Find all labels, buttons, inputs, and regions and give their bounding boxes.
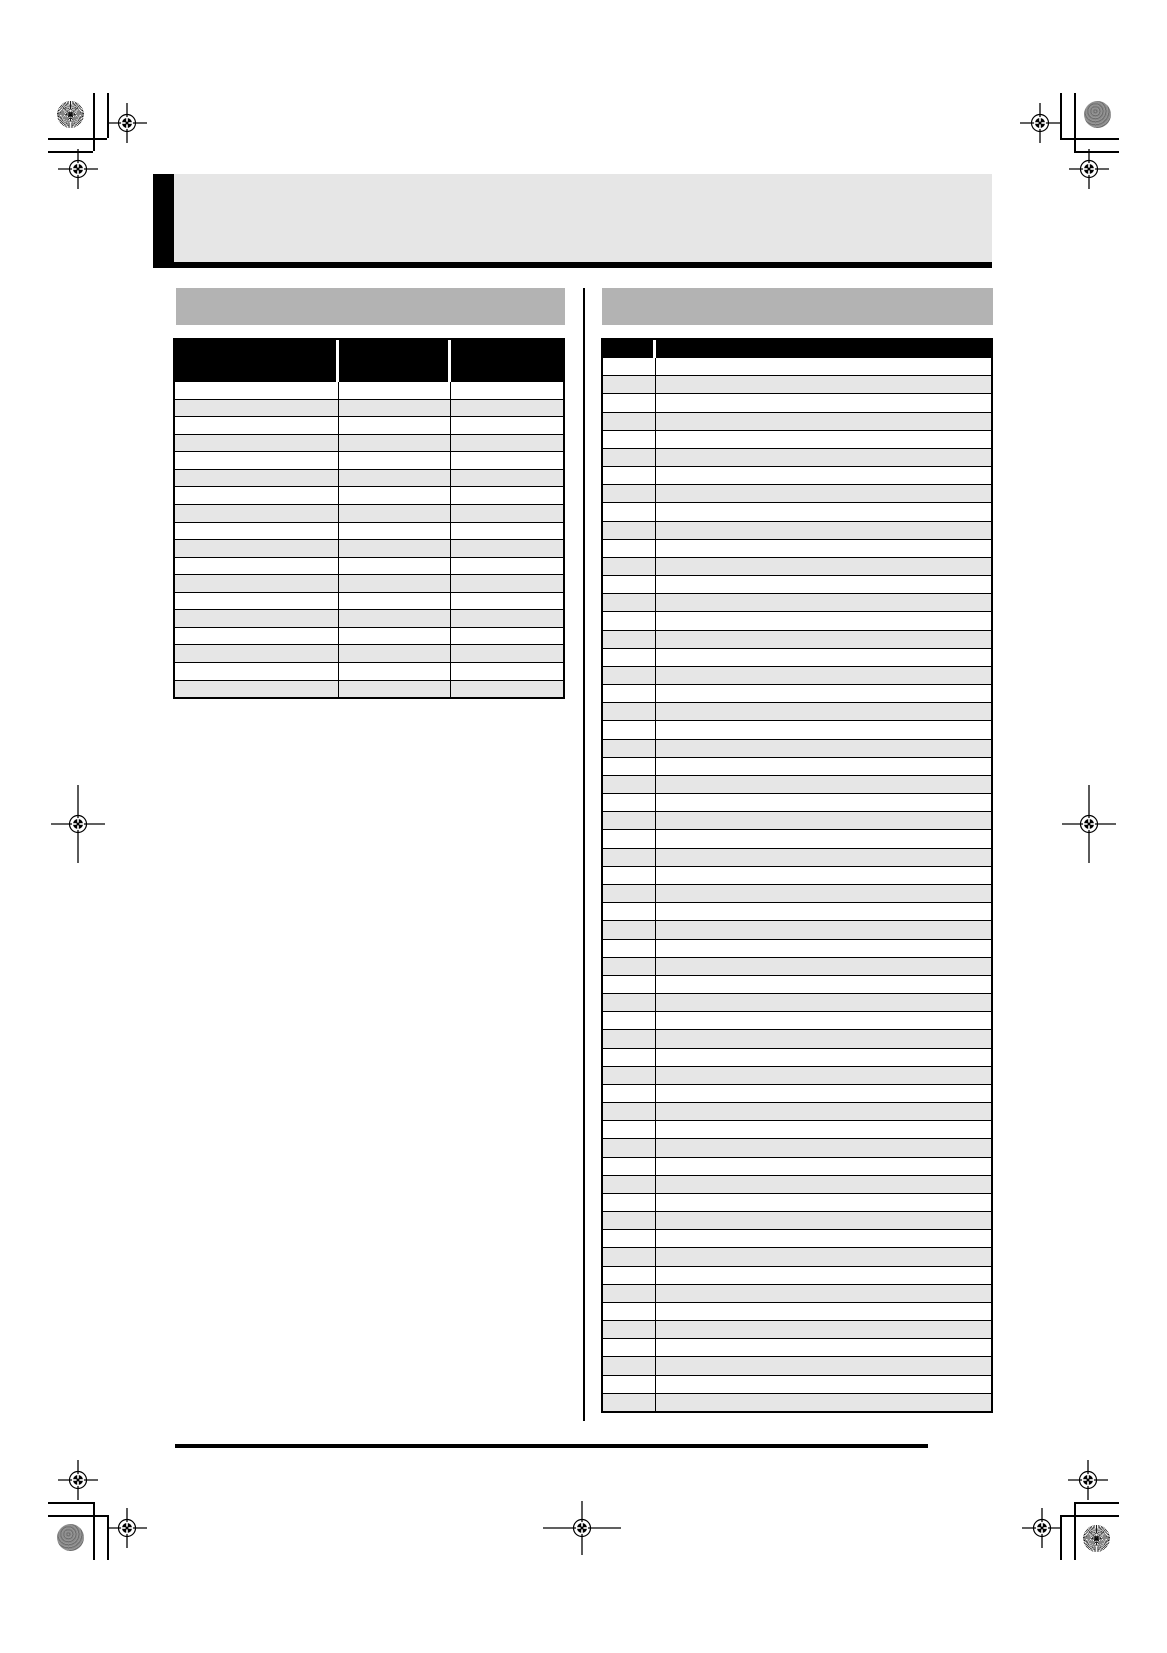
table-row — [603, 594, 991, 612]
registration-mark-icon — [1062, 785, 1116, 868]
left-table-header-row — [175, 340, 563, 382]
table-row — [175, 452, 563, 470]
table-row — [603, 1049, 991, 1067]
table-header-cell — [603, 340, 656, 358]
table-cell — [603, 1303, 656, 1320]
table-cell — [603, 1176, 656, 1193]
table-row — [603, 449, 991, 467]
table-row — [603, 1194, 991, 1212]
table-row — [603, 1394, 991, 1411]
table-cell — [451, 575, 563, 592]
table-row — [603, 1303, 991, 1321]
table-cell — [603, 940, 656, 957]
right-table — [601, 338, 993, 1413]
table-row — [603, 721, 991, 739]
table-cell — [656, 794, 991, 811]
table-cell — [656, 558, 991, 575]
table-cell — [656, 449, 991, 466]
table-cell — [603, 740, 656, 757]
table-header-cell — [451, 340, 563, 382]
table-row — [175, 663, 563, 681]
table-cell — [656, 1230, 991, 1247]
table-row — [603, 994, 991, 1012]
table-cell — [603, 413, 656, 430]
starburst-target-icon — [57, 101, 84, 128]
table-cell — [603, 1030, 656, 1047]
table-row — [603, 685, 991, 703]
table-cell — [656, 522, 991, 539]
table-cell — [603, 1285, 656, 1302]
table-cell — [603, 431, 656, 448]
table-cell — [339, 435, 451, 452]
table-cell — [603, 794, 656, 811]
table-row — [603, 1212, 991, 1230]
table-cell — [603, 721, 656, 738]
table-cell — [603, 394, 656, 411]
table-cell — [603, 449, 656, 466]
table-row — [603, 1139, 991, 1157]
table-row — [603, 940, 991, 958]
table-row — [603, 1357, 991, 1375]
table-cell — [339, 663, 451, 680]
table-row — [603, 576, 991, 594]
table-row — [603, 1176, 991, 1194]
crop-mark-line — [1060, 93, 1062, 138]
table-row — [603, 776, 991, 794]
right-section-title-bar — [602, 288, 993, 325]
table-cell — [603, 1339, 656, 1356]
table-cell — [339, 540, 451, 557]
table-row — [603, 885, 991, 903]
table-cell — [339, 610, 451, 627]
table-cell — [656, 1103, 991, 1120]
table-cell — [175, 575, 339, 592]
table-row — [175, 400, 563, 418]
table-cell — [603, 1357, 656, 1374]
table-cell — [603, 631, 656, 648]
table-row — [603, 703, 991, 721]
table-cell — [603, 467, 656, 484]
table-cell — [656, 1376, 991, 1393]
table-cell — [451, 663, 563, 680]
table-cell — [603, 1139, 656, 1156]
table-row — [603, 958, 991, 976]
right-table-body — [603, 358, 991, 1411]
table-cell — [656, 1030, 991, 1047]
table-cell — [451, 470, 563, 487]
table-cell — [656, 485, 991, 502]
table-cell — [451, 593, 563, 610]
table-row — [603, 1030, 991, 1048]
table-cell — [656, 940, 991, 957]
table-cell — [339, 575, 451, 592]
table-row — [603, 849, 991, 867]
halftone-target-icon — [57, 1524, 84, 1551]
table-cell — [603, 522, 656, 539]
table-row — [603, 1103, 991, 1121]
table-cell — [603, 1321, 656, 1338]
table-cell — [451, 523, 563, 540]
table-cell — [656, 576, 991, 593]
crop-mark-line — [48, 151, 93, 153]
table-cell — [339, 523, 451, 540]
table-cell — [656, 1212, 991, 1229]
table-cell — [656, 867, 991, 884]
table-cell — [656, 903, 991, 920]
table-cell — [175, 435, 339, 452]
table-cell — [603, 667, 656, 684]
table-cell — [656, 921, 991, 938]
table-cell — [603, 649, 656, 666]
table-cell — [656, 1012, 991, 1029]
table-row — [603, 1248, 991, 1266]
table-row — [603, 740, 991, 758]
table-cell — [656, 1158, 991, 1175]
table-cell — [603, 558, 656, 575]
table-row — [175, 523, 563, 541]
table-header-cell — [339, 340, 451, 382]
table-cell — [175, 470, 339, 487]
halftone-target-icon — [1084, 101, 1111, 128]
table-cell — [339, 470, 451, 487]
table-row — [603, 413, 991, 431]
table-row — [603, 522, 991, 540]
table-row — [175, 470, 563, 488]
table-cell — [656, 830, 991, 847]
left-table — [173, 338, 565, 699]
table-row — [175, 382, 563, 400]
table-cell — [339, 487, 451, 504]
table-cell — [339, 645, 451, 662]
left-section-title-bar — [176, 288, 565, 325]
table-cell — [656, 994, 991, 1011]
table-cell — [339, 593, 451, 610]
document-page — [0, 0, 1167, 1653]
table-row — [603, 812, 991, 830]
table-row — [603, 631, 991, 649]
crop-mark-line — [1074, 151, 1119, 153]
header-bottom-rule — [153, 262, 992, 268]
table-cell — [656, 1285, 991, 1302]
table-row — [175, 505, 563, 523]
table-cell — [603, 1212, 656, 1229]
table-cell — [603, 776, 656, 793]
table-cell — [656, 758, 991, 775]
table-cell — [603, 485, 656, 502]
table-row — [175, 558, 563, 576]
table-row — [603, 1085, 991, 1103]
table-cell — [603, 1121, 656, 1138]
table-row — [603, 558, 991, 576]
registration-mark-icon — [51, 785, 105, 868]
table-row — [603, 394, 991, 412]
registration-mark-icon — [1068, 1460, 1108, 1505]
table-cell — [451, 435, 563, 452]
table-cell — [656, 358, 991, 375]
table-cell — [603, 1103, 656, 1120]
table-row — [603, 903, 991, 921]
table-cell — [656, 413, 991, 430]
table-cell — [603, 1267, 656, 1284]
table-cell — [451, 487, 563, 504]
table-cell — [656, 1049, 991, 1066]
crop-mark-line — [1060, 1515, 1119, 1517]
registration-mark-icon — [107, 103, 147, 148]
table-cell — [656, 540, 991, 557]
table-cell — [603, 1230, 656, 1247]
table-header-cell — [175, 340, 339, 382]
crop-mark-line — [48, 138, 107, 140]
table-cell — [603, 1158, 656, 1175]
table-cell — [603, 1085, 656, 1102]
registration-mark-icon — [1020, 103, 1060, 148]
crop-mark-line — [1074, 1502, 1076, 1560]
table-cell — [339, 558, 451, 575]
table-row — [175, 593, 563, 611]
table-cell — [603, 903, 656, 920]
registration-mark-icon — [1069, 149, 1109, 194]
registration-mark-icon — [58, 149, 98, 194]
table-cell — [656, 649, 991, 666]
table-cell — [656, 1176, 991, 1193]
table-cell — [603, 703, 656, 720]
table-cell — [175, 417, 339, 434]
table-cell — [656, 1067, 991, 1084]
table-row — [175, 540, 563, 558]
table-cell — [603, 358, 656, 375]
table-cell — [603, 958, 656, 975]
table-row — [603, 612, 991, 630]
table-cell — [656, 721, 991, 738]
table-cell — [603, 994, 656, 1011]
table-cell — [603, 921, 656, 938]
table-cell — [656, 1194, 991, 1211]
table-row — [175, 628, 563, 646]
crop-mark-line — [1060, 1515, 1062, 1560]
table-row — [603, 503, 991, 521]
table-row — [603, 1321, 991, 1339]
table-cell — [603, 576, 656, 593]
table-cell — [175, 505, 339, 522]
crop-mark-line — [48, 1502, 93, 1504]
table-row — [603, 540, 991, 558]
table-cell — [656, 885, 991, 902]
table-row — [175, 645, 563, 663]
crop-mark-line — [1074, 1502, 1119, 1504]
table-cell — [656, 667, 991, 684]
table-row — [603, 667, 991, 685]
table-cell — [656, 703, 991, 720]
crop-mark-line — [1060, 138, 1119, 140]
header-accent-bar — [153, 174, 174, 268]
table-cell — [175, 558, 339, 575]
table-cell — [603, 758, 656, 775]
table-row — [175, 435, 563, 453]
crop-mark-line — [1074, 93, 1076, 151]
table-cell — [175, 681, 339, 698]
table-cell — [656, 1085, 991, 1102]
table-row — [603, 1267, 991, 1285]
table-header-cell — [656, 340, 991, 358]
table-row — [603, 1376, 991, 1394]
table-row — [603, 758, 991, 776]
table-cell — [175, 663, 339, 680]
table-cell — [656, 394, 991, 411]
table-cell — [656, 503, 991, 520]
table-cell — [175, 628, 339, 645]
table-row — [603, 1121, 991, 1139]
table-row — [603, 358, 991, 376]
crop-mark-line — [107, 1515, 109, 1560]
table-cell — [603, 812, 656, 829]
table-cell — [656, 849, 991, 866]
table-cell — [603, 594, 656, 611]
table-row — [603, 830, 991, 848]
crop-mark-line — [93, 93, 95, 151]
table-cell — [656, 1339, 991, 1356]
table-cell — [656, 1267, 991, 1284]
table-cell — [656, 1303, 991, 1320]
table-cell — [451, 610, 563, 627]
table-row — [175, 417, 563, 435]
table-cell — [175, 645, 339, 662]
table-cell — [339, 628, 451, 645]
table-cell — [175, 382, 339, 399]
table-cell — [656, 1357, 991, 1374]
table-cell — [603, 1012, 656, 1029]
table-cell — [451, 400, 563, 417]
table-row — [603, 485, 991, 503]
table-row — [175, 610, 563, 628]
table-row — [603, 431, 991, 449]
table-cell — [339, 681, 451, 698]
table-cell — [656, 976, 991, 993]
footer-rule — [175, 1444, 928, 1448]
registration-mark-icon — [1022, 1508, 1062, 1553]
table-cell — [175, 523, 339, 540]
table-cell — [175, 540, 339, 557]
table-row — [603, 1158, 991, 1176]
table-cell — [451, 681, 563, 698]
table-row — [603, 1339, 991, 1357]
table-cell — [603, 867, 656, 884]
table-row — [603, 467, 991, 485]
table-cell — [175, 593, 339, 610]
registration-mark-icon — [107, 1508, 147, 1553]
table-cell — [451, 382, 563, 399]
table-cell — [603, 540, 656, 557]
left-table-body — [175, 382, 563, 697]
table-cell — [656, 467, 991, 484]
table-cell — [656, 812, 991, 829]
table-cell — [451, 417, 563, 434]
table-row — [603, 1285, 991, 1303]
registration-mark-icon — [58, 1460, 98, 1505]
crop-mark-line — [93, 1502, 95, 1560]
table-cell — [603, 849, 656, 866]
table-cell — [175, 610, 339, 627]
table-cell — [451, 505, 563, 522]
table-cell — [656, 1121, 991, 1138]
table-cell — [339, 505, 451, 522]
table-cell — [656, 958, 991, 975]
table-cell — [656, 612, 991, 629]
table-cell — [656, 594, 991, 611]
table-cell — [451, 558, 563, 575]
table-row — [603, 921, 991, 939]
table-cell — [175, 452, 339, 469]
page-header-band — [174, 174, 992, 262]
table-cell — [603, 830, 656, 847]
table-cell — [656, 1321, 991, 1338]
table-cell — [451, 645, 563, 662]
table-cell — [656, 685, 991, 702]
table-cell — [339, 417, 451, 434]
table-cell — [603, 612, 656, 629]
table-cell — [451, 452, 563, 469]
right-table-header-row — [603, 340, 991, 358]
table-cell — [603, 503, 656, 520]
table-cell — [175, 487, 339, 504]
table-cell — [603, 885, 656, 902]
table-cell — [656, 431, 991, 448]
table-cell — [451, 540, 563, 557]
table-cell — [656, 1394, 991, 1411]
table-row — [175, 681, 563, 698]
table-cell — [339, 382, 451, 399]
table-cell — [603, 685, 656, 702]
table-cell — [603, 1194, 656, 1211]
table-cell — [656, 1248, 991, 1265]
table-cell — [603, 1049, 656, 1066]
table-row — [603, 1067, 991, 1085]
table-cell — [656, 376, 991, 393]
crop-mark-line — [48, 1515, 107, 1517]
table-cell — [656, 1139, 991, 1156]
table-row — [603, 794, 991, 812]
table-row — [603, 376, 991, 394]
table-cell — [175, 400, 339, 417]
table-row — [175, 575, 563, 593]
table-row — [175, 487, 563, 505]
registration-mark-icon — [543, 1501, 621, 1560]
table-cell — [656, 776, 991, 793]
table-cell — [603, 1067, 656, 1084]
table-cell — [603, 1394, 656, 1411]
table-cell — [603, 1248, 656, 1265]
table-cell — [656, 631, 991, 648]
table-cell — [339, 452, 451, 469]
crop-mark-line — [107, 93, 109, 138]
table-cell — [603, 1376, 656, 1393]
column-divider-line — [583, 288, 585, 1421]
table-cell — [603, 376, 656, 393]
table-cell — [603, 976, 656, 993]
starburst-target-icon — [1083, 1525, 1110, 1552]
table-row — [603, 976, 991, 994]
table-row — [603, 1012, 991, 1030]
table-cell — [451, 628, 563, 645]
table-cell — [656, 740, 991, 757]
table-row — [603, 1230, 991, 1248]
table-cell — [339, 400, 451, 417]
table-row — [603, 649, 991, 667]
table-row — [603, 867, 991, 885]
